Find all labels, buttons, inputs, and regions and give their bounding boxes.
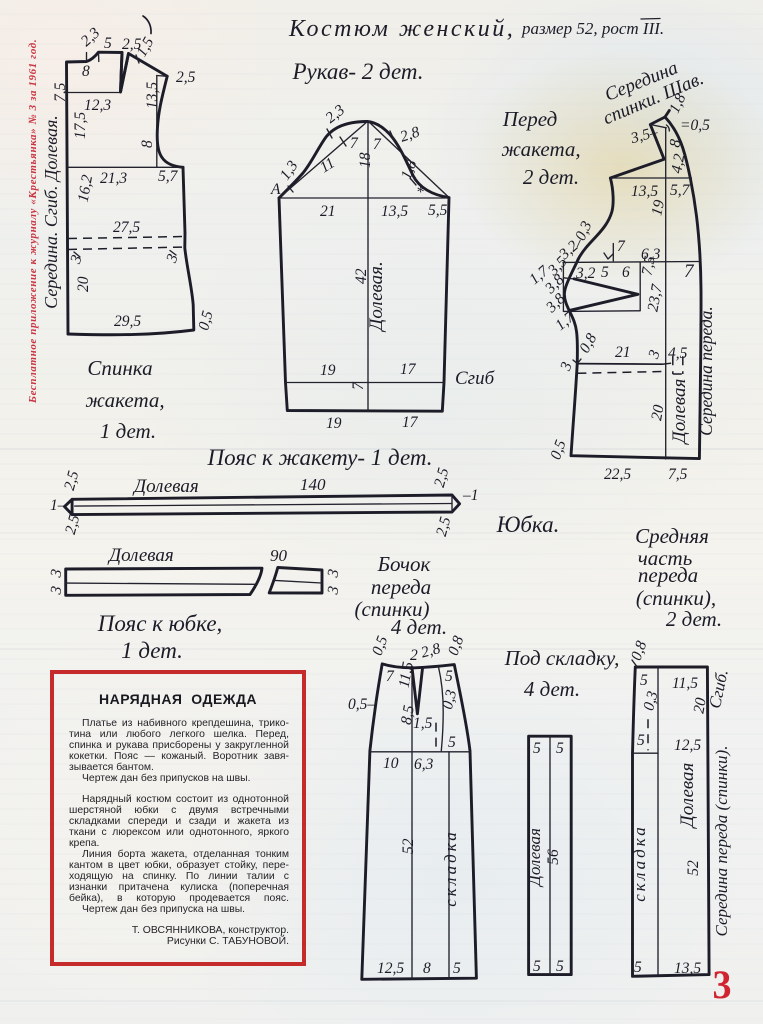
svg-text:7: 7 — [350, 135, 359, 152]
svg-text:размер 52, рост III.: размер 52, рост III. — [521, 19, 664, 38]
svg-text:5: 5 — [556, 740, 564, 757]
svg-text:10: 10 — [383, 755, 399, 772]
svg-text:5: 5 — [637, 732, 645, 749]
svg-text:29,5: 29,5 — [114, 313, 141, 330]
svg-text:13,5: 13,5 — [631, 183, 658, 200]
svg-text:5: 5 — [104, 35, 112, 52]
svg-text:5,5: 5,5 — [428, 202, 448, 219]
svg-text:5: 5 — [445, 668, 453, 685]
svg-text:2,3: 2,3 — [78, 24, 104, 50]
svg-text:2,5: 2,5 — [431, 466, 453, 489]
svg-text:20: 20 — [648, 403, 667, 421]
svg-text:Под складку,: Под складку, — [504, 646, 620, 670]
svg-text:4,5: 4,5 — [668, 345, 688, 362]
svg-text:Середина переда (спинки).: Середина переда (спинки). — [712, 746, 731, 937]
svg-text:0,5–: 0,5– — [348, 696, 375, 713]
svg-text:7: 7 — [350, 381, 367, 390]
svg-text:7,5: 7,5 — [668, 466, 688, 483]
svg-text:21: 21 — [615, 344, 631, 361]
svg-text:12,5: 12,5 — [674, 737, 701, 754]
svg-text:8: 8 — [666, 138, 684, 149]
svg-text:7,5: 7,5 — [639, 255, 659, 277]
svg-text:19: 19 — [320, 362, 336, 379]
svg-text:11,5: 11,5 — [672, 675, 698, 692]
svg-text:11: 11 — [317, 154, 338, 176]
svg-text:23,7: 23,7 — [644, 282, 666, 313]
svg-text:Середина переда.: Середина переда. — [696, 306, 716, 436]
svg-text:3: 3 — [557, 360, 576, 374]
svg-text:5: 5 — [448, 734, 456, 751]
svg-text:8: 8 — [82, 63, 90, 80]
svg-text:Середина. Сгиб. Долевая.: Середина. Сгиб. Долевая. — [41, 115, 61, 309]
svg-text:1–: 1– — [50, 497, 66, 514]
svg-text:27,5: 27,5 — [113, 219, 140, 236]
svg-text:0,8: 0,8 — [628, 639, 651, 663]
svg-text:2 дет.: 2 дет. — [523, 165, 579, 189]
svg-text:4,2: 4,2 — [668, 152, 688, 174]
svg-text:5: 5 — [634, 959, 642, 976]
svg-text:=0,5: =0,5 — [680, 117, 710, 134]
svg-text:90: 90 — [270, 546, 288, 565]
svg-text:Долевая: Долевая — [132, 476, 199, 497]
svg-text:складка: складка — [630, 824, 649, 902]
svg-text:5,7: 5,7 — [158, 168, 179, 185]
svg-text:5: 5 — [533, 740, 541, 757]
svg-text:5: 5 — [533, 958, 541, 975]
svg-text:0,3: 0,3 — [439, 688, 461, 711]
svg-text:–1: –1 — [462, 487, 479, 504]
svg-text:8: 8 — [139, 140, 156, 148]
svg-text:Средняя: Средняя — [635, 524, 709, 548]
svg-text:6,3: 6,3 — [414, 756, 434, 773]
svg-text:Долевая: Долевая — [107, 545, 174, 566]
svg-text:16,2: 16,2 — [75, 173, 96, 203]
svg-text:2,5: 2,5 — [61, 469, 83, 492]
svg-text:7: 7 — [373, 136, 382, 153]
svg-text:Спинка: Спинка — [87, 356, 152, 380]
svg-text:5,7: 5,7 — [670, 182, 691, 199]
svg-text:52: 52 — [685, 860, 702, 876]
svg-text:4 дет.: 4 дет. — [391, 615, 447, 639]
svg-text:7,5: 7,5 — [52, 82, 69, 102]
svg-text:8,5: 8,5 — [398, 704, 418, 726]
svg-text:3: 3 — [324, 568, 342, 580]
svg-text:переда: переда — [638, 563, 698, 587]
svg-text:2,5: 2,5 — [176, 69, 196, 86]
svg-text:3: 3 — [47, 585, 65, 597]
svg-text:8: 8 — [423, 960, 431, 977]
svg-text:Долевая: Долевая — [669, 379, 690, 446]
svg-text:19: 19 — [326, 415, 342, 432]
svg-text:Сгиб.: Сгиб. — [705, 668, 732, 710]
svg-text:1 дет.: 1 дет. — [100, 419, 156, 443]
svg-text:140: 140 — [300, 475, 326, 494]
svg-text:0,5: 0,5 — [369, 634, 392, 658]
svg-text:3,5–: 3,5– — [628, 124, 660, 148]
svg-text:Долевая: Долевая — [677, 763, 698, 830]
svg-text:3: 3 — [324, 585, 342, 597]
svg-text:Костюм женский,: Костюм женский, — [288, 16, 515, 42]
svg-text:Пояс к юбке,: Пояс к юбке, — [97, 611, 223, 636]
svg-text:3,2: 3,2 — [575, 265, 596, 282]
svg-text:3: 3 — [645, 348, 664, 362]
svg-text:18: 18 — [357, 152, 374, 168]
svg-text:2,8: 2,8 — [398, 123, 422, 145]
svg-text:2,5: 2,5 — [433, 515, 455, 538]
svg-text:Юбка.: Юбка. — [496, 512, 560, 537]
svg-text:4 дет.: 4 дет. — [524, 677, 580, 701]
svg-text:2,8: 2,8 — [419, 640, 442, 662]
svg-text:1,8: 1,8 — [398, 157, 421, 181]
svg-text:Пояс к жакету- 1 дет.: Пояс к жакету- 1 дет. — [206, 445, 432, 470]
svg-text:Бочок: Бочок — [377, 552, 431, 576]
svg-text:21,3: 21,3 — [100, 170, 127, 187]
svg-text:17: 17 — [402, 414, 419, 431]
svg-text:5: 5 — [556, 958, 564, 975]
svg-text:0,5: 0,5 — [547, 438, 570, 462]
svg-text:2: 2 — [410, 647, 418, 664]
svg-text:Долевая: Долевая — [525, 828, 544, 888]
svg-text:переда: переда — [371, 575, 431, 599]
svg-text:3: 3 — [47, 568, 65, 580]
svg-text:Долевая.: Долевая. — [366, 261, 387, 333]
svg-text:22,5: 22,5 — [604, 466, 631, 483]
svg-text:2,5: 2,5 — [62, 513, 84, 536]
svg-text:жакета,: жакета, — [501, 137, 580, 161]
svg-text:*: * — [416, 184, 424, 201]
svg-text:21: 21 — [320, 203, 336, 220]
svg-text:6: 6 — [622, 264, 630, 281]
svg-text:13,5: 13,5 — [381, 203, 408, 220]
svg-text:13,5: 13,5 — [674, 960, 701, 977]
svg-text:52: 52 — [400, 838, 417, 854]
svg-text:5: 5 — [453, 960, 461, 977]
svg-text:7: 7 — [617, 238, 626, 255]
svg-text:17: 17 — [400, 361, 417, 378]
svg-text:1 дет.: 1 дет. — [121, 638, 183, 663]
svg-text:Перед: Перед — [502, 107, 557, 131]
svg-text:2 дет.: 2 дет. — [666, 607, 722, 631]
svg-text:12,5: 12,5 — [377, 960, 404, 977]
svg-text:7: 7 — [386, 668, 395, 685]
svg-text:20: 20 — [75, 276, 92, 292]
svg-text:0,5: 0,5 — [195, 309, 217, 332]
svg-text:12,3: 12,3 — [84, 97, 111, 114]
svg-text:жакета,: жакета, — [85, 388, 164, 412]
svg-text:0,8: 0,8 — [576, 330, 601, 355]
svg-text:Рукав- 2 дет.: Рукав- 2 дет. — [291, 59, 423, 84]
svg-text:13,5: 13,5 — [144, 82, 161, 109]
svg-text:складка: складка — [441, 829, 460, 907]
svg-text:Сгиб: Сгиб — [455, 368, 496, 389]
svg-text:56: 56 — [545, 849, 562, 865]
svg-text:0,8: 0,8 — [445, 634, 468, 658]
svg-text:5: 5 — [601, 264, 609, 281]
svg-text:А: А — [270, 181, 281, 198]
svg-text:7: 7 — [684, 261, 695, 282]
svg-text:17,5: 17,5 — [72, 112, 89, 139]
svg-text:5: 5 — [640, 672, 648, 689]
svg-text:2,3: 2,3 — [322, 101, 348, 126]
svg-text:3: 3 — [163, 252, 182, 266]
